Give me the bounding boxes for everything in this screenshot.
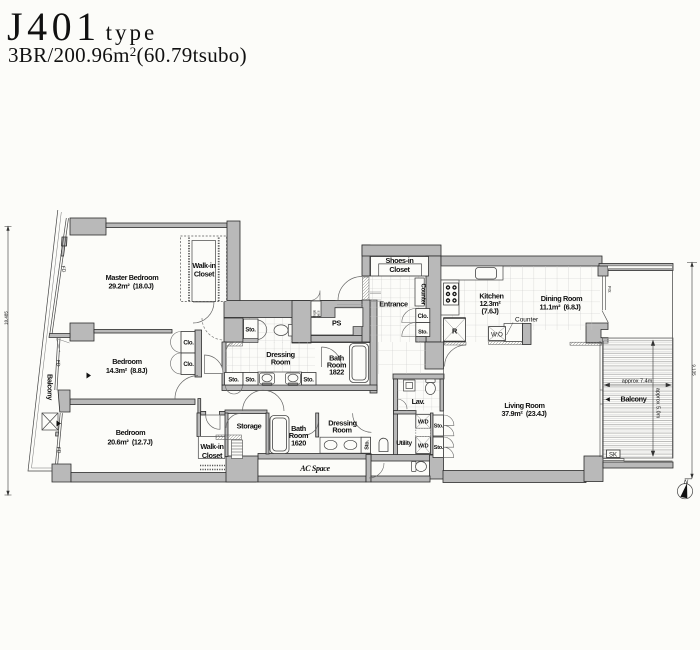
svg-text:Sto.: Sto.	[303, 378, 314, 384]
svg-text:Counter: Counter	[420, 284, 426, 306]
svg-text:11.1m² (6.8J): 11.1m² (6.8J)	[540, 303, 582, 312]
svg-text:1822: 1822	[329, 368, 344, 377]
svg-text:W/D: W/D	[418, 420, 429, 426]
svg-text:Room: Room	[271, 358, 291, 367]
svg-text:Closet: Closet	[202, 451, 223, 460]
svg-text:PS: PS	[332, 319, 342, 328]
svg-text:Clo.: Clo.	[183, 362, 194, 368]
svg-text:Utility: Utility	[396, 440, 412, 447]
svg-text:29.2m² (18.0J): 29.2m² (18.0J)	[108, 282, 154, 291]
svg-text:Sto.: Sto.	[434, 424, 444, 430]
svg-text:◄: ◄	[604, 395, 611, 404]
svg-text:37.9m² (23.4J): 37.9m² (23.4J)	[501, 409, 547, 418]
svg-text:Entrance: Entrance	[379, 300, 408, 309]
svg-text:FD: FD	[60, 265, 67, 273]
svg-text:14.3m² (8.8J): 14.3m² (8.8J)	[106, 366, 148, 375]
svg-text:9.135: 9.135	[692, 364, 697, 376]
svg-text:Lav.: Lav.	[412, 397, 425, 406]
svg-text:Clo.: Clo.	[183, 341, 194, 347]
svg-text:Bedroom: Bedroom	[112, 357, 142, 366]
svg-text:10.485: 10.485	[4, 311, 9, 325]
svg-text:Sto.: Sto.	[245, 378, 256, 384]
svg-text:FD: FD	[55, 360, 61, 367]
svg-text:W/D: W/D	[418, 444, 429, 450]
svg-text:approx 7.4m: approx 7.4m	[622, 379, 653, 385]
svg-text:Sto.: Sto.	[434, 445, 444, 451]
svg-text:Sto.: Sto.	[418, 330, 428, 336]
svg-text:Walk-in: Walk-in	[200, 442, 223, 451]
svg-text:Counter: Counter	[515, 317, 539, 324]
svg-text:1620: 1620	[291, 439, 306, 448]
svg-text:N: N	[684, 480, 689, 486]
svg-text:Shoes-in: Shoes-in	[385, 256, 413, 265]
svg-text:Balcony: Balcony	[621, 395, 648, 404]
svg-text:FD: FD	[55, 447, 62, 455]
svg-text:FIX: FIX	[607, 286, 612, 293]
svg-text:Sto.: Sto.	[228, 378, 239, 384]
svg-text:SK: SK	[609, 453, 617, 459]
svg-text:Bedroom: Bedroom	[116, 428, 146, 437]
svg-text:Room: Room	[332, 426, 352, 435]
svg-text:(7.6J): (7.6J)	[482, 307, 500, 316]
svg-text:Closet: Closet	[194, 270, 215, 279]
svg-text:AC Space: AC Space	[299, 464, 330, 473]
svg-text:Balcony: Balcony	[46, 374, 55, 401]
svg-text:Closet: Closet	[389, 265, 410, 274]
svg-text:3BR/200.96m2(60.79tsubo): 3BR/200.96m2(60.79tsubo)	[8, 43, 247, 67]
svg-text:W.O: W.O	[491, 333, 503, 339]
svg-text:Sto.: Sto.	[245, 328, 256, 334]
svg-text:20.6m² (12.7J): 20.6m² (12.7J)	[107, 438, 153, 447]
svg-text:Storage: Storage	[237, 422, 262, 431]
svg-text:Sto.: Sto.	[364, 440, 370, 450]
svg-text:approx 5.0m: approx 5.0m	[655, 388, 661, 419]
svg-text:Clo.: Clo.	[418, 314, 429, 320]
